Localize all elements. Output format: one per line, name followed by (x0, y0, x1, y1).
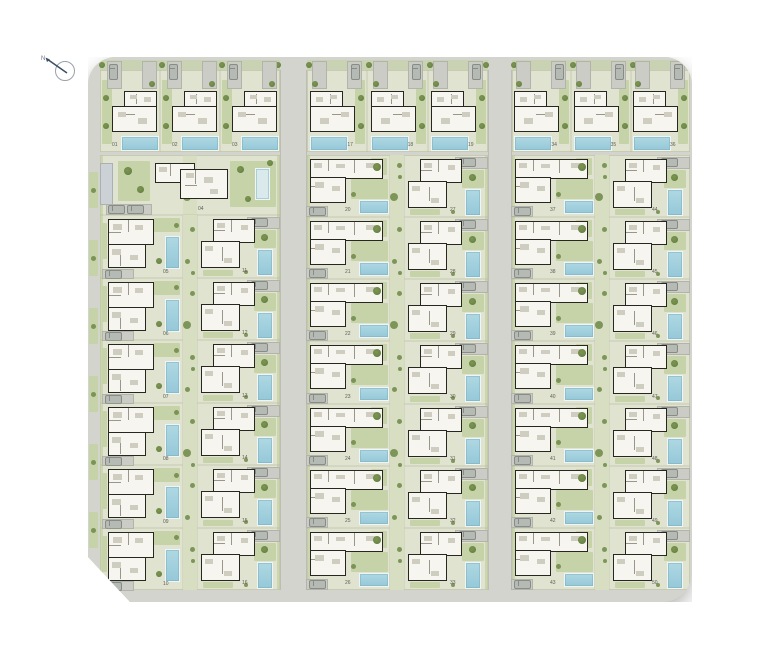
furniture-mark (224, 446, 232, 451)
car-icon (615, 64, 624, 80)
furniture-mark (412, 310, 420, 315)
furniture-mark (424, 287, 432, 292)
car-icon (514, 580, 531, 589)
furniture-mark (537, 497, 545, 502)
grass-patch (203, 332, 233, 338)
furniture-mark (519, 349, 527, 354)
car-icon (309, 580, 326, 589)
furniture-mark (541, 475, 550, 479)
grass-patch (410, 458, 440, 464)
plot: 30 (404, 341, 488, 403)
furniture-mark (258, 118, 267, 124)
house-footprint (232, 106, 277, 132)
grass-patch (556, 241, 593, 261)
plot: 10 (100, 528, 183, 591)
car-windshield (255, 407, 256, 412)
furniture-mark (144, 97, 151, 102)
grass-patch (355, 80, 365, 144)
furniture-mark (653, 414, 660, 419)
plot: 16 (197, 528, 280, 591)
tree-icon (149, 81, 155, 87)
grass-patch (619, 80, 629, 144)
interior-wall (626, 481, 637, 482)
pool (564, 449, 594, 463)
car-icon (351, 64, 360, 80)
furniture-mark (537, 559, 545, 564)
furniture-mark (113, 349, 122, 355)
plot-number: 26 (345, 581, 351, 586)
interior-wall (128, 220, 129, 232)
furniture-mark (112, 374, 121, 380)
grass-patch (410, 271, 440, 277)
plot: 35 (571, 70, 630, 152)
grass-patch (410, 396, 440, 402)
furniture-mark (519, 287, 527, 292)
furniture-mark (541, 288, 550, 292)
furniture-mark (135, 350, 143, 355)
furniture-mark (629, 287, 637, 292)
bush-icon (351, 316, 356, 321)
tree-icon (469, 236, 476, 243)
car-windshield (112, 206, 113, 211)
plot: 45 (609, 217, 690, 279)
grass-patch (556, 303, 593, 323)
interior-wall (438, 346, 439, 358)
furniture-mark (381, 118, 390, 124)
house-footprint (431, 106, 476, 132)
tree-icon (156, 508, 162, 514)
interior-wall (354, 222, 355, 235)
furniture-mark (520, 431, 529, 437)
car-windshield (313, 208, 314, 213)
grass-patch (102, 411, 107, 447)
tree-icon (156, 321, 162, 327)
house-footprint (633, 106, 678, 132)
pool (465, 189, 481, 216)
furniture-mark (519, 225, 527, 230)
furniture-mark (315, 555, 324, 561)
interior-wall (109, 295, 121, 296)
plot: 18 (367, 70, 427, 152)
interior-wall (245, 114, 255, 115)
road (280, 57, 307, 602)
furniture-mark (135, 288, 143, 293)
furniture-mark (437, 97, 444, 102)
furniture-mark (617, 435, 625, 440)
tree-icon (237, 166, 244, 173)
grass-patch (102, 536, 107, 572)
tree-icon (681, 95, 687, 101)
grass-patch (556, 552, 593, 572)
bush-icon (190, 227, 195, 232)
interior-wall (643, 222, 644, 234)
tree-icon (156, 571, 162, 577)
furniture-mark (217, 411, 225, 416)
plot-number: 37 (550, 208, 556, 213)
furniture-mark (541, 413, 550, 417)
tree-icon (685, 62, 691, 68)
furniture-mark (520, 97, 527, 102)
pool (574, 136, 612, 151)
interior-wall (643, 160, 644, 172)
interior-wall (354, 346, 355, 359)
bush-icon (398, 559, 402, 563)
furniture-mark (653, 227, 660, 232)
interior-wall (328, 533, 329, 544)
car-windshield (313, 332, 314, 337)
furniture-mark (412, 497, 420, 502)
grass-patch (351, 241, 388, 261)
furniture-mark (448, 289, 455, 294)
furniture-mark (186, 173, 194, 178)
car-icon (109, 64, 118, 80)
plot: 48 (609, 404, 690, 466)
furniture-mark (629, 163, 637, 168)
car-icon (412, 64, 421, 80)
car-icon (105, 582, 122, 591)
house-footprint (310, 221, 383, 241)
divider-strip (595, 155, 609, 590)
furniture-mark (424, 225, 432, 230)
plot: 31 (404, 404, 488, 466)
interior-wall (634, 498, 635, 512)
furniture-mark (315, 182, 324, 188)
interior-wall (533, 409, 534, 420)
furniture-mark (451, 95, 458, 99)
furniture-mark (314, 412, 322, 417)
grass-patch (678, 80, 688, 144)
house-footprint (310, 408, 383, 428)
plot-number: 03 (232, 143, 238, 148)
furniture-mark (617, 310, 625, 315)
car-icon (555, 64, 564, 80)
furniture-mark (224, 321, 232, 326)
bush-icon (91, 188, 96, 193)
tree-icon (219, 62, 225, 68)
furniture-mark (431, 509, 439, 514)
tree-icon (267, 160, 273, 166)
car-windshield (463, 470, 464, 475)
house-footprint (515, 488, 551, 514)
tree-icon (578, 412, 586, 420)
furniture-mark (341, 112, 349, 117)
bush-icon (390, 193, 398, 201)
furniture-mark (314, 349, 322, 354)
furniture-mark (224, 258, 232, 263)
plot-number: 43 (550, 581, 556, 586)
pool (359, 449, 389, 463)
plot: 40 (512, 341, 595, 403)
house-footprint (310, 470, 383, 490)
grass-patch (222, 80, 232, 144)
interior-wall (438, 409, 439, 421)
tree-icon (576, 81, 582, 87)
interior-wall (533, 222, 534, 233)
furniture-mark (130, 380, 138, 385)
grass-patch (476, 80, 486, 144)
bush-icon (398, 175, 402, 179)
car-windshield (675, 68, 680, 69)
car-icon (309, 456, 326, 465)
bush-icon (556, 378, 561, 383)
interior-wall (128, 470, 129, 482)
bush-icon (556, 502, 561, 507)
car-windshield (255, 282, 256, 287)
bush-icon (597, 515, 602, 520)
tree-icon (163, 123, 169, 129)
car-windshield (463, 221, 464, 226)
furniture-mark (130, 255, 138, 260)
interior-wall (222, 247, 223, 261)
interior-wall (634, 373, 635, 387)
bush-icon (603, 559, 607, 563)
grass-patch (615, 458, 645, 464)
furniture-mark (636, 260, 644, 265)
bush-icon (174, 348, 179, 353)
grass-patch (351, 365, 388, 385)
bush-icon (595, 449, 603, 457)
pool (465, 500, 481, 527)
tree-icon (635, 81, 641, 87)
furniture-mark (241, 475, 248, 480)
grass-patch (102, 286, 107, 322)
bush-icon (595, 193, 603, 201)
bush-icon (603, 367, 607, 371)
furniture-mark (629, 536, 637, 541)
furniture-mark (113, 224, 122, 230)
car-icon (169, 64, 178, 80)
grass-patch (410, 209, 440, 215)
plot: 22 (307, 279, 390, 341)
interior-wall (128, 408, 129, 420)
furniture-mark (431, 384, 439, 389)
interior-wall (438, 471, 439, 483)
furniture-mark (205, 496, 213, 501)
grass-patch (102, 80, 112, 144)
furniture-mark (431, 260, 439, 265)
furniture-mark (205, 434, 213, 439)
plot-number: 35 (611, 143, 617, 148)
furniture-mark (636, 571, 644, 576)
furniture-mark (332, 186, 340, 191)
interior-wall (231, 345, 232, 357)
grass-patch (162, 80, 172, 144)
furniture-mark (135, 538, 143, 543)
house-footprint (310, 106, 355, 132)
grass-patch (203, 457, 233, 463)
car-windshield (109, 396, 110, 401)
interior-wall (626, 419, 637, 420)
furniture-mark (130, 443, 138, 448)
furniture-mark (520, 555, 529, 561)
bush-icon (390, 449, 398, 457)
grass-patch (351, 490, 388, 510)
pool (257, 499, 273, 526)
house-footprint (514, 106, 559, 132)
bush-icon (351, 378, 356, 383)
furniture-mark (629, 225, 637, 230)
house-footprint (515, 550, 551, 576)
furniture-mark (448, 227, 455, 232)
furniture-mark (537, 186, 545, 191)
car-windshield (413, 68, 418, 69)
furniture-mark (241, 350, 248, 355)
plot-number: 01 (112, 143, 118, 148)
plot: 19 (428, 70, 488, 152)
plot-number: 07 (163, 395, 169, 400)
plot: 39 (512, 279, 595, 341)
furniture-mark (332, 310, 340, 315)
house-footprint (310, 345, 383, 365)
plot: 07 (100, 340, 183, 403)
interior-wall (533, 346, 534, 357)
tree-icon (156, 383, 162, 389)
furniture-mark (520, 368, 529, 374)
plot: 23 (307, 341, 390, 403)
tree-icon (163, 95, 169, 101)
pool (667, 562, 683, 589)
bush-icon (185, 387, 190, 392)
pool (165, 299, 180, 332)
plot: 20 (307, 155, 390, 217)
plot-number: 17 (347, 143, 353, 148)
plot: 08 (100, 403, 183, 466)
plot: 04 (100, 155, 280, 215)
pool (359, 324, 389, 338)
tree-icon (261, 484, 268, 491)
furniture-mark (336, 475, 345, 479)
interior-wall (128, 533, 129, 545)
furniture-mark (241, 288, 248, 293)
house-footprint (108, 557, 146, 581)
house-footprint (574, 106, 619, 132)
car-windshield (255, 219, 256, 224)
interior-wall (429, 187, 430, 201)
furniture-mark (653, 95, 660, 99)
interior-wall (634, 311, 635, 325)
furniture-mark (629, 349, 637, 354)
plot: 29 (404, 279, 488, 341)
tree-icon (469, 422, 476, 429)
tree-icon (433, 81, 439, 87)
pool (514, 136, 552, 151)
tree-icon (103, 123, 109, 129)
pool (371, 136, 409, 151)
plot: 06 (100, 278, 183, 341)
plot-number: 28 (450, 270, 456, 275)
house-footprint (310, 426, 346, 452)
plot-number: 41 (550, 457, 556, 462)
plot: 41 (512, 404, 595, 466)
bush-icon (398, 463, 402, 467)
furniture-mark (391, 95, 398, 99)
house-footprint (515, 283, 588, 303)
interior-wall (328, 409, 329, 420)
furniture-mark (431, 322, 439, 327)
interior-wall (128, 283, 129, 295)
plot-number: 38 (550, 270, 556, 275)
plot: 03 (220, 70, 280, 152)
furniture-mark (178, 112, 186, 117)
furniture-mark (112, 437, 121, 443)
interior-wall (429, 311, 430, 325)
interior-wall (559, 471, 560, 484)
tree-icon (469, 360, 476, 367)
interior-wall (438, 222, 439, 234)
bush-icon (602, 483, 607, 488)
interior-wall (128, 345, 129, 357)
grass-patch (615, 209, 645, 215)
furniture-mark (217, 286, 225, 291)
bush-icon (603, 175, 607, 179)
interior-wall (222, 497, 223, 511)
pool (431, 136, 469, 151)
car-windshield (255, 532, 256, 537)
grass-patch (410, 582, 440, 588)
plot-number: 32 (450, 519, 456, 524)
tree-icon (671, 484, 678, 491)
interior-wall (421, 170, 432, 171)
furniture-mark (524, 118, 533, 124)
tree-icon (261, 421, 268, 428)
house-footprint (515, 177, 551, 203)
furniture-mark (332, 559, 340, 564)
grass-patch (556, 490, 593, 510)
car-windshield (170, 68, 175, 69)
bush-icon (556, 254, 561, 259)
interior-wall (429, 498, 430, 512)
furniture-mark (316, 97, 323, 102)
house-footprint (108, 244, 146, 268)
plot-number: 19 (468, 143, 474, 148)
furniture-mark (636, 198, 644, 203)
car-icon (514, 331, 531, 340)
interior-wall (214, 418, 225, 419)
bush-icon (185, 259, 190, 264)
tree-icon (261, 359, 268, 366)
interior-wall (643, 346, 644, 358)
car-icon (127, 205, 144, 214)
tree-icon (373, 412, 381, 420)
bush-icon (597, 259, 602, 264)
plot: 28 (404, 217, 488, 279)
plot-number: 29 (450, 332, 456, 337)
interior-wall (438, 284, 439, 296)
interior-wall (626, 170, 637, 171)
house-footprint (310, 532, 383, 552)
tree-icon (99, 62, 105, 68)
bush-icon (397, 291, 402, 296)
pool (359, 387, 389, 401)
plot-number: 18 (408, 143, 414, 148)
interior-wall (214, 230, 225, 231)
furniture-mark (636, 509, 644, 514)
plot-number: 06 (163, 332, 169, 337)
furniture-mark (537, 248, 545, 253)
furniture-mark (332, 248, 340, 253)
house-footprint (515, 408, 588, 428)
bush-icon (556, 564, 561, 569)
furniture-mark (330, 95, 337, 99)
grass-patch (559, 80, 569, 144)
furniture-mark (412, 186, 420, 191)
bush-icon (191, 463, 195, 467)
interior-wall (109, 420, 121, 421)
furniture-mark (424, 536, 432, 541)
furniture-mark (617, 559, 625, 564)
furniture-mark (545, 112, 553, 117)
furniture-mark (424, 163, 432, 168)
